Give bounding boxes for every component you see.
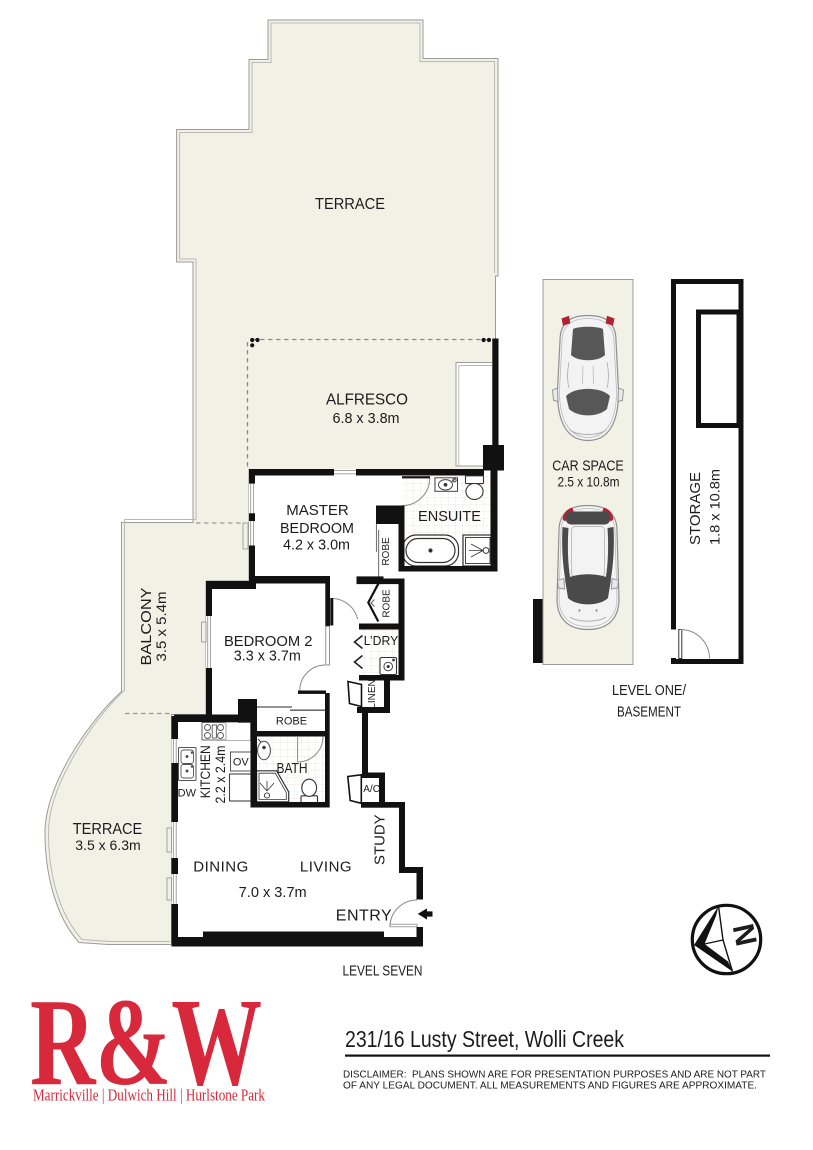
svg-text:STORAGE: STORAGE [687, 472, 704, 545]
svg-text:4.2 x 3.0m: 4.2 x 3.0m [283, 538, 350, 554]
svg-text:TERRACE: TERRACE [73, 821, 143, 838]
svg-text:LEVEL ONE/: LEVEL ONE/ [612, 683, 687, 699]
svg-text:DINING: DINING [193, 858, 249, 875]
svg-text:LEVEL SEVEN: LEVEL SEVEN [343, 964, 423, 980]
svg-text:DISCLAIMER: PLANS SHOWN ARE F: DISCLAIMER: PLANS SHOWN ARE FOR PRESENTA… [343, 1070, 766, 1081]
svg-text:7.0 x 3.7m: 7.0 x 3.7m [239, 885, 307, 901]
svg-text:BEDROOM 2: BEDROOM 2 [224, 633, 313, 650]
svg-text:2.5 x 10.8m: 2.5 x 10.8m [558, 474, 620, 490]
svg-text:BEDROOM: BEDROOM [280, 520, 354, 537]
svg-text:ROBE: ROBE [381, 537, 392, 566]
svg-text:BATH: BATH [277, 761, 308, 777]
svg-text:LIVING: LIVING [300, 858, 352, 875]
svg-text:3.3 x 3.7m: 3.3 x 3.7m [234, 649, 301, 665]
svg-text:L’DRY: L’DRY [364, 633, 399, 648]
svg-text:BASEMENT: BASEMENT [617, 705, 681, 721]
svg-text:STUDY: STUDY [372, 814, 389, 865]
svg-text:ALFRESCO: ALFRESCO [326, 392, 408, 409]
svg-text:ROBE: ROBE [276, 716, 307, 728]
svg-text:OF ANY LEGAL DOCUMENT. ALL MEA: OF ANY LEGAL DOCUMENT. ALL MEASUREMENTS … [343, 1081, 757, 1092]
svg-text:3.5 x 6.3m: 3.5 x 6.3m [75, 837, 141, 853]
svg-text:6.8 x 3.8m: 6.8 x 3.8m [333, 411, 400, 427]
svg-text:OV: OV [233, 757, 250, 769]
svg-text:3.5 x 5.4m: 3.5 x 5.4m [153, 592, 169, 662]
svg-text:ENSUITE: ENSUITE [418, 508, 481, 525]
svg-text:Marrickville | Dulwich Hill |: Marrickville | Dulwich Hill | Hurlstone … [33, 1086, 266, 1105]
svg-text:231/16 Lusty Street, Wolli Cre: 231/16 Lusty Street, Wolli Creek [345, 1026, 624, 1052]
svg-text:CAR SPACE: CAR SPACE [552, 459, 624, 475]
svg-text:1.8 x 10.8m: 1.8 x 10.8m [707, 469, 723, 545]
svg-text:ENTRY: ENTRY [336, 908, 392, 925]
svg-text:LINEN: LINEN [367, 679, 378, 708]
svg-text:A/C: A/C [363, 784, 380, 795]
svg-text:MASTER: MASTER [286, 502, 349, 519]
svg-text:ROBE: ROBE [382, 589, 393, 618]
svg-text:2.2 x 2.4m: 2.2 x 2.4m [213, 746, 228, 804]
svg-text:TERRACE: TERRACE [315, 196, 385, 213]
svg-text:KITCHEN: KITCHEN [197, 745, 213, 798]
svg-text:DW: DW [178, 788, 197, 800]
